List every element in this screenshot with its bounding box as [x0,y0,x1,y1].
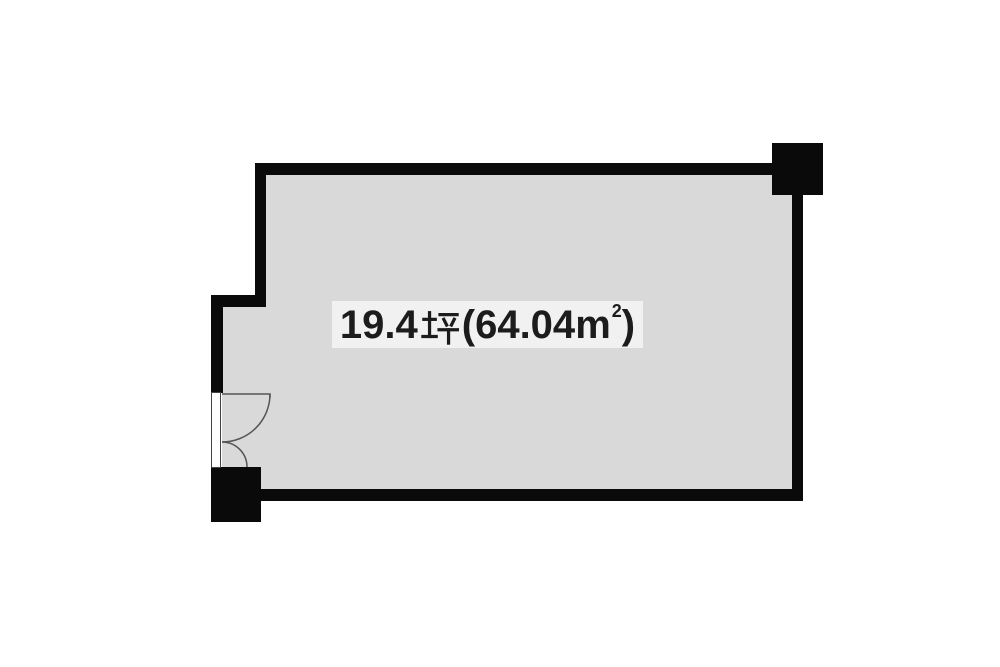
pillar-bottom-left [211,467,261,522]
area-open-paren: ( [462,305,475,345]
wall-right [792,195,803,501]
area-sqm-exponent: 2 [612,302,622,320]
area-close-paren: ) [622,305,635,345]
area-sqm-value: 64.04 [475,305,575,345]
door-frame [212,393,221,468]
wall-bottom [261,489,803,501]
area-tsubo-value: 19.4 [340,305,418,345]
area-label: 19.4 坪 ( 64.04 m 2 ) [332,301,643,348]
pillar-top-right [772,143,823,195]
wall-left-lower [211,295,223,393]
wall-left-upper [255,163,266,307]
wall-top [255,163,772,175]
floor-plan-canvas: 19.4 坪 ( 64.04 m 2 ) [0,0,1000,667]
tsubo-kanji-glyph: 坪 [421,307,459,345]
area-sqm-unit: m [575,305,611,345]
